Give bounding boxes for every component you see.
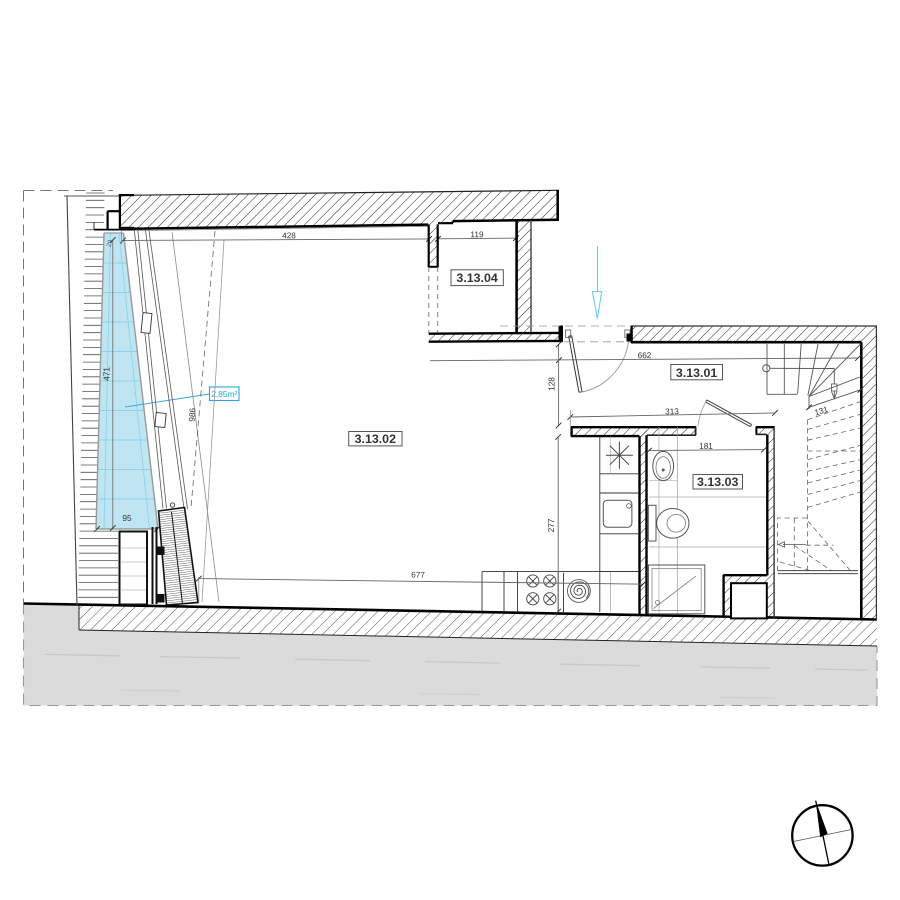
svg-text:677: 677	[411, 570, 425, 580]
svg-text:128: 128	[547, 377, 557, 391]
svg-text:3.13.03: 3.13.03	[697, 475, 738, 489]
svg-text:119: 119	[470, 229, 484, 239]
svg-text:471: 471	[102, 367, 112, 381]
svg-text:3.13.04: 3.13.04	[456, 271, 497, 285]
svg-text:3.13.02: 3.13.02	[355, 432, 396, 446]
svg-text:95: 95	[122, 513, 132, 523]
svg-text:313: 313	[665, 406, 679, 416]
svg-text:428: 428	[282, 230, 296, 240]
svg-text:181: 181	[699, 441, 713, 451]
svg-text:277: 277	[546, 518, 556, 532]
svg-text:3.13.01: 3.13.01	[676, 366, 717, 380]
svg-text:986: 986	[187, 407, 198, 422]
svg-text:662: 662	[638, 350, 652, 360]
